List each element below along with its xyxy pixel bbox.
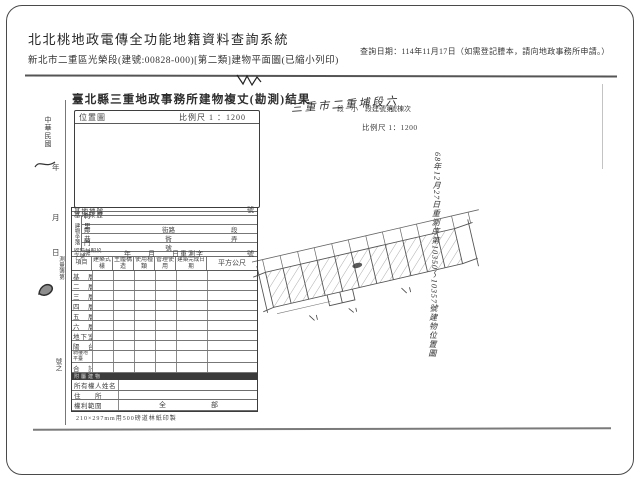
- col-management: 管理使用: [155, 257, 176, 270]
- col-completion-date: 建築完成日期: [176, 257, 207, 270]
- floor-row-ground: 基 層: [72, 271, 257, 281]
- era-label: 中華民國: [43, 116, 53, 158]
- scanned-document: 臺北縣三重地政事務所建物複丈(勘測)結果 中華民國 年 月 日 測量簿第 號之 …: [0, 0, 640, 480]
- location-map-box: 位置圖 比例尺 1 ：1200: [74, 110, 260, 208]
- paper-spec-note: 210×297mm用500磅道林紙印製: [76, 413, 177, 422]
- col-style: 建築式樣: [92, 257, 113, 270]
- location-map-scale: 比例尺 1 ：1200: [179, 112, 246, 123]
- printed-building-no-label: 號棟次: [390, 104, 411, 114]
- col-item: 項目: [72, 257, 92, 270]
- floor-row-total: 合 計: [72, 363, 257, 373]
- col-usage-type: 使用種類: [134, 257, 155, 270]
- scan-top-edge: [25, 74, 617, 77]
- year-label: 年: [52, 162, 60, 173]
- grid-header-row: 項目 建築式樣 主體構造 使用種類 管理使用 建築完成日期 平方公尺: [72, 257, 257, 271]
- floor-row-5: 五 層: [72, 311, 257, 321]
- building-location-label: 建物坐落: [72, 216, 82, 251]
- owner-address-row: 住 所: [72, 391, 257, 400]
- survey-form-table: 基地地號 號 基地來歷 建物坐落 村 里 鄰 街路 段: [71, 207, 258, 412]
- floor-row-basement: 地下室: [72, 331, 257, 341]
- location-map-label: 位置圖: [79, 112, 106, 123]
- month-label: 月: [52, 212, 60, 223]
- floor-row-3: 三 層: [72, 291, 257, 301]
- printed-section-label: 段 小 段建號第: [337, 104, 393, 114]
- floor-row-2: 二 層: [72, 281, 257, 291]
- rights-scope-row: 權利範圍 全 部: [72, 400, 257, 411]
- building-location-group: 建物坐落 村 里 鄰 街路 段 巷 衖 弄 門 牌: [72, 216, 257, 252]
- handwritten-loop: [36, 280, 58, 300]
- number-suffix-label: 號之: [52, 358, 62, 380]
- location-box-header: 位置圖 比例尺 1 ：1200: [75, 111, 259, 124]
- attached-building-row: 附屬建物: [72, 373, 257, 380]
- drawing-scale-label: 比例尺 1：1200: [362, 122, 418, 133]
- scan-mark-zigzag: [236, 72, 262, 88]
- col-square-meters: 平方公尺: [207, 257, 257, 270]
- floor-row-4: 四 層: [72, 301, 257, 311]
- scan-right-edge-line: [602, 84, 603, 169]
- floor-row-arcade: 騎樓地平臺: [72, 351, 257, 363]
- scan-bottom-edge: [33, 427, 611, 431]
- form-title: 臺北縣三重地政事務所建物複丈(勘測)結果: [72, 91, 311, 107]
- survey-book-label: 測量簿第: [57, 256, 65, 290]
- floor-row-balcony: 陽 台: [72, 341, 257, 351]
- scan-left-fold-line: [65, 100, 66, 425]
- col-structure: 主體構造: [113, 257, 134, 270]
- parcel-strip-drawing: [252, 196, 480, 344]
- floor-row-6: 六 層: [72, 321, 257, 331]
